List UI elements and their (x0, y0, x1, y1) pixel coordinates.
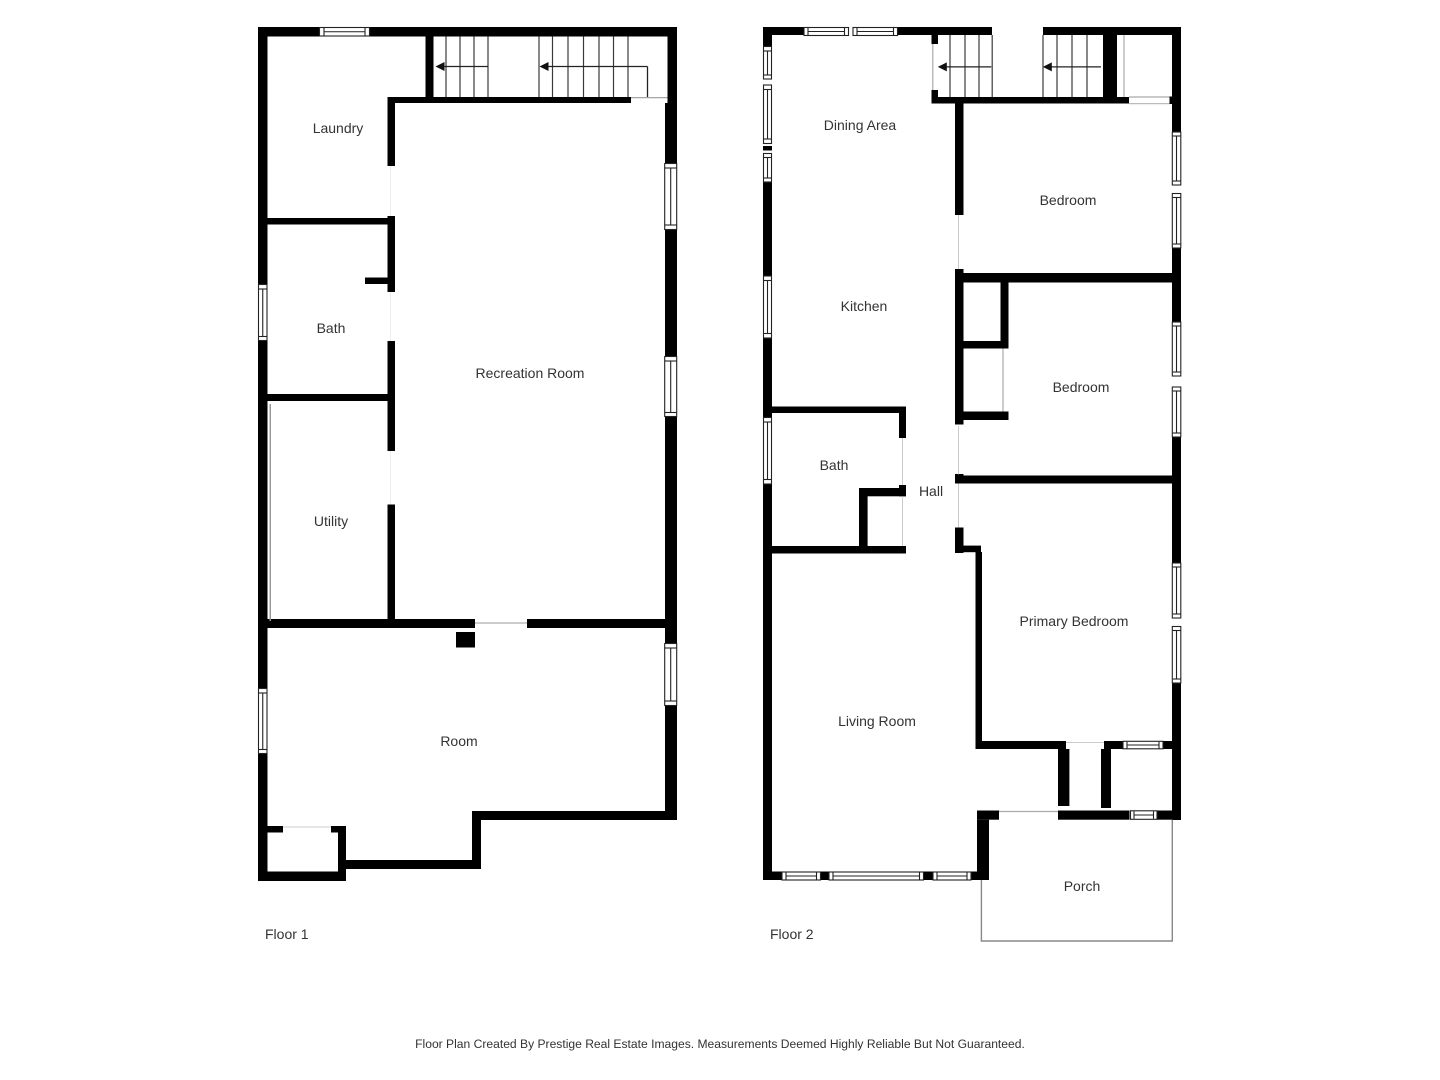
svg-text:Hall: Hall (919, 483, 943, 499)
svg-text:Living Room: Living Room (838, 713, 916, 729)
svg-text:Floor Plan Created By Prestige: Floor Plan Created By Prestige Real Esta… (415, 1037, 1025, 1051)
svg-text:Primary Bedroom: Primary Bedroom (1020, 613, 1129, 629)
svg-text:Bedroom: Bedroom (1053, 379, 1110, 395)
svg-text:Recreation Room: Recreation Room (476, 365, 585, 381)
svg-text:Laundry: Laundry (313, 120, 364, 136)
svg-text:Bedroom: Bedroom (1040, 192, 1097, 208)
svg-text:Dining Area: Dining Area (824, 117, 897, 133)
svg-text:Kitchen: Kitchen (841, 298, 888, 314)
svg-text:Porch: Porch (1064, 878, 1101, 894)
svg-text:Bath: Bath (820, 457, 849, 473)
svg-text:Room: Room (440, 733, 477, 749)
svg-text:Floor 1: Floor 1 (265, 926, 309, 942)
svg-text:Bath: Bath (317, 320, 346, 336)
svg-text:Floor 2: Floor 2 (770, 926, 814, 942)
svg-text:Utility: Utility (314, 513, 348, 529)
